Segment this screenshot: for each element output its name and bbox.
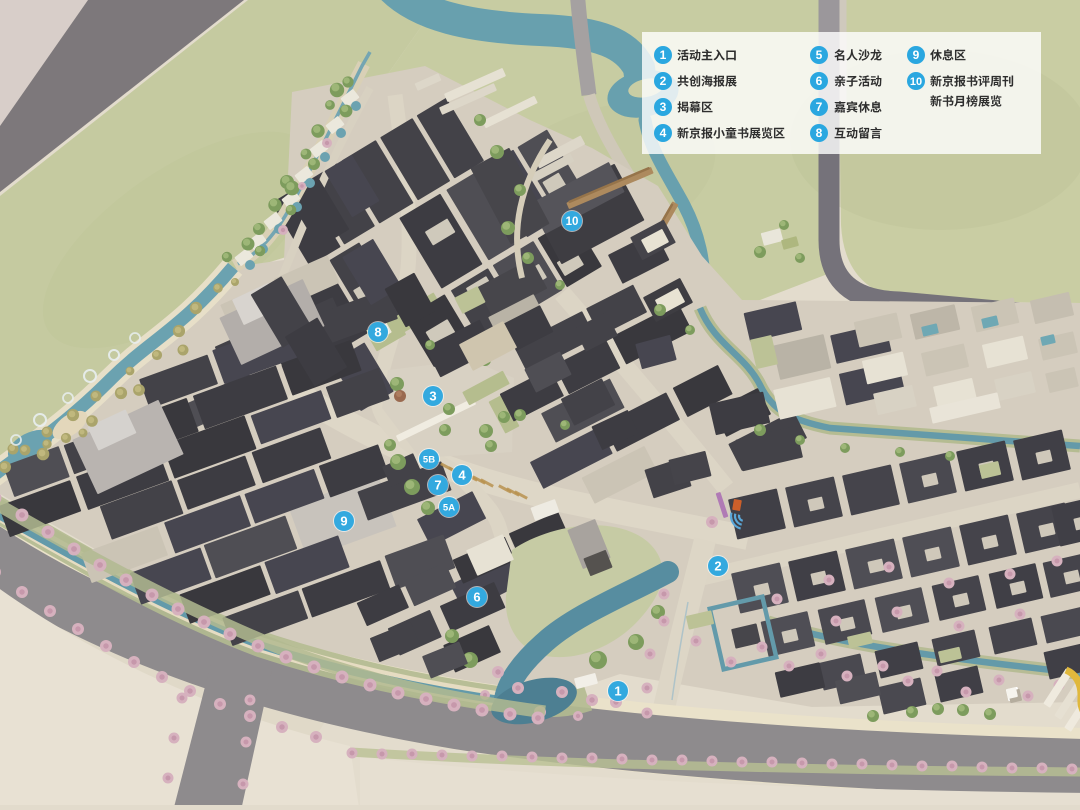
svg-text:1: 1 xyxy=(660,48,667,62)
svg-text:10: 10 xyxy=(910,76,922,88)
svg-text:3: 3 xyxy=(660,100,667,114)
svg-text:8: 8 xyxy=(816,126,823,140)
svg-text:2: 2 xyxy=(660,74,667,88)
svg-text:9: 9 xyxy=(913,48,920,62)
svg-text:9: 9 xyxy=(340,514,347,529)
svg-text:7: 7 xyxy=(434,478,441,493)
svg-text:2: 2 xyxy=(714,559,721,574)
svg-text:7: 7 xyxy=(816,100,823,114)
svg-text:3: 3 xyxy=(429,389,436,404)
svg-text:6: 6 xyxy=(816,74,823,88)
svg-text:6: 6 xyxy=(473,590,480,605)
svg-text:5A: 5A xyxy=(443,502,455,513)
svg-text:5B: 5B xyxy=(423,454,435,465)
svg-text:4: 4 xyxy=(660,126,667,140)
svg-text:10: 10 xyxy=(566,216,579,228)
svg-text:1: 1 xyxy=(614,684,621,699)
svg-text:5: 5 xyxy=(816,48,823,62)
svg-text:4: 4 xyxy=(458,468,466,483)
svg-text:8: 8 xyxy=(374,325,381,340)
